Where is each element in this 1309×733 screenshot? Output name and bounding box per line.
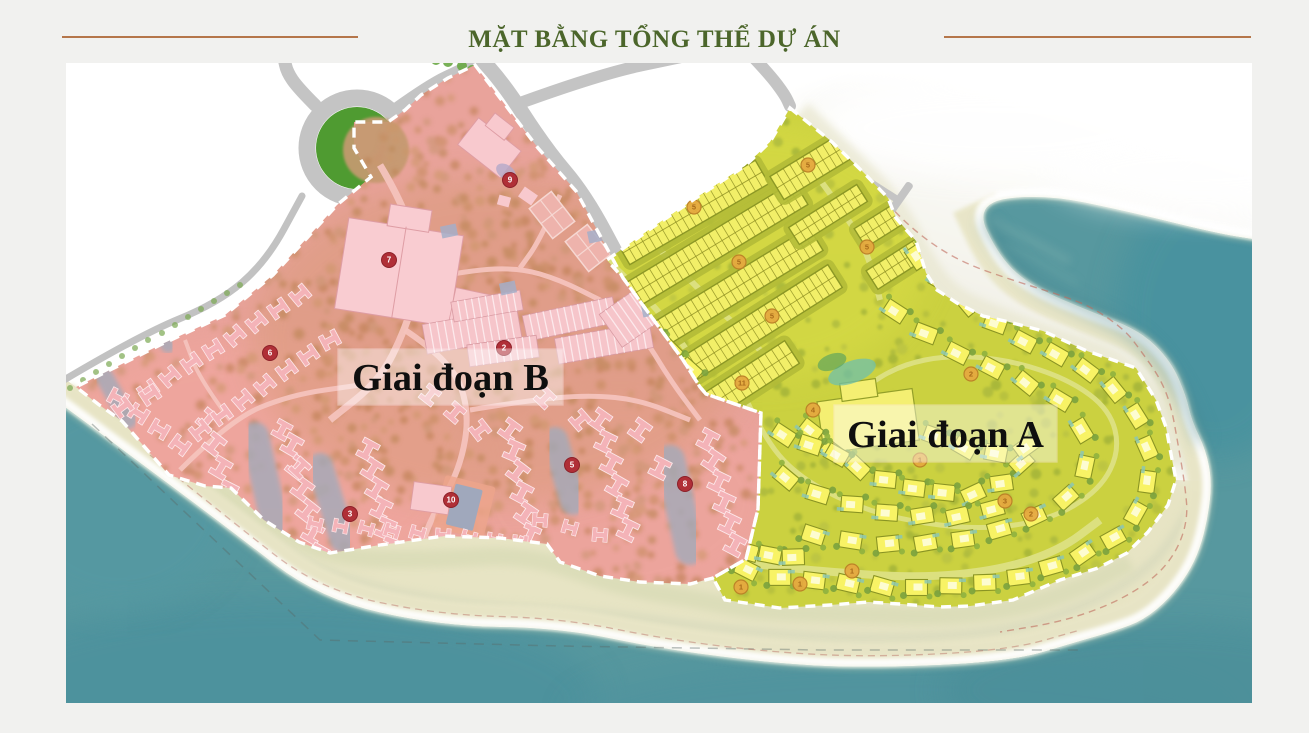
- svg-text:Giai đoạn B: Giai đoạn B: [352, 357, 549, 399]
- svg-text:6: 6: [268, 349, 273, 358]
- svg-text:11: 11: [738, 378, 746, 387]
- svg-text:1: 1: [850, 566, 854, 575]
- svg-text:10: 10: [447, 496, 456, 505]
- svg-text:1: 1: [739, 582, 743, 591]
- svg-text:2: 2: [969, 369, 973, 378]
- svg-text:2: 2: [1029, 509, 1033, 518]
- svg-text:5: 5: [570, 461, 575, 470]
- svg-text:5: 5: [692, 202, 696, 211]
- svg-text:5: 5: [806, 160, 810, 169]
- svg-text:8: 8: [683, 480, 688, 489]
- svg-text:5: 5: [865, 242, 869, 251]
- svg-text:3: 3: [1003, 496, 1007, 505]
- svg-text:5: 5: [737, 257, 741, 266]
- svg-text:9: 9: [508, 176, 513, 185]
- svg-text:3: 3: [348, 510, 353, 519]
- svg-text:5: 5: [770, 311, 774, 320]
- svg-text:7: 7: [387, 256, 392, 265]
- svg-text:1: 1: [798, 579, 802, 588]
- svg-text:Giai đoạn A: Giai đoạn A: [847, 414, 1044, 456]
